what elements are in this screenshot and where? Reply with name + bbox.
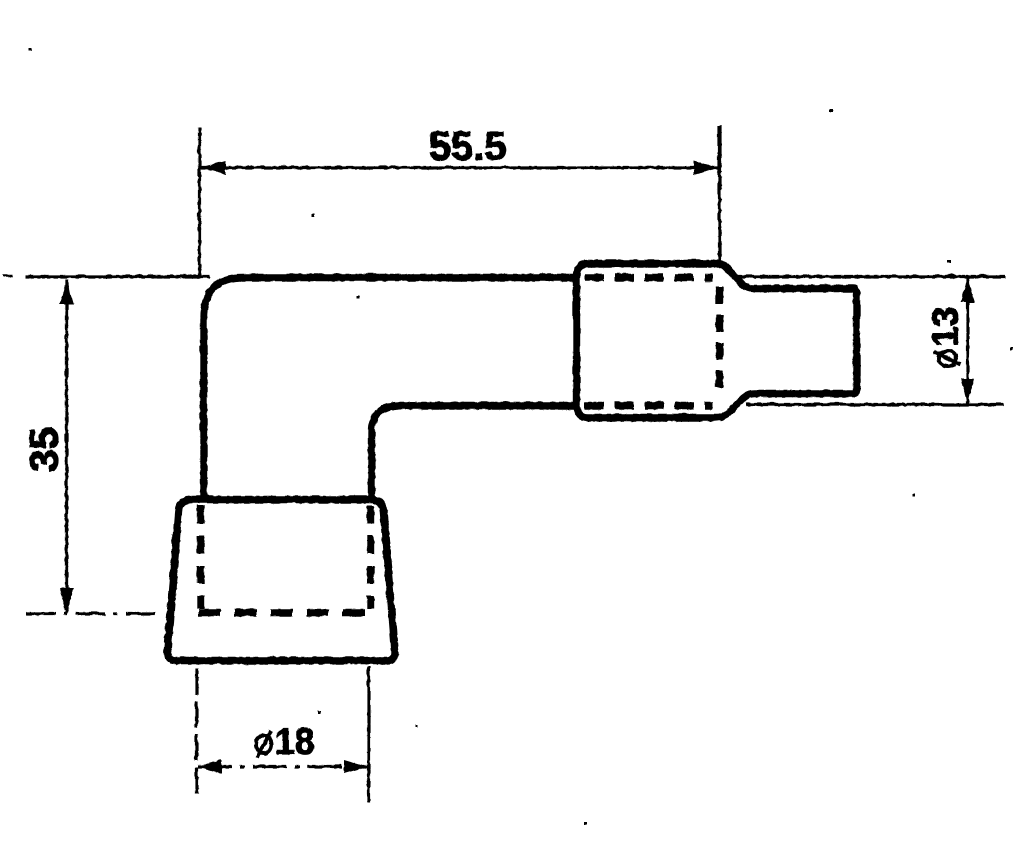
svg-text:18: 18 [274,720,314,761]
svg-text:55.5: 55.5 [428,124,506,168]
svg-text:35: 35 [22,427,66,472]
svg-text:13: 13 [924,306,965,346]
